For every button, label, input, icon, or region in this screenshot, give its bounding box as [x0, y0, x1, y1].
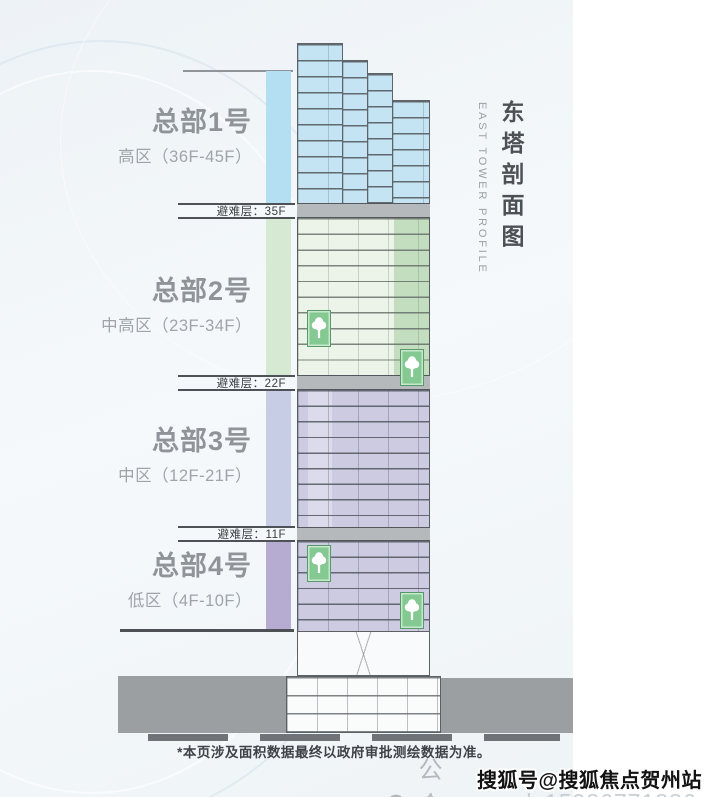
zone-strip-2 — [266, 219, 291, 376]
tree-icon — [404, 598, 420, 623]
basement-levels — [286, 676, 441, 733]
sky-garden-marker — [400, 349, 424, 386]
wechat-label: 公众号 — [418, 750, 467, 797]
tower-profile-page: 避难层：35F 避难层：22F 避难层：11F 总部1号 高区（36F-45F）… — [0, 0, 704, 797]
sohu-watermark: 搜狐号@搜狐焦点贺州站 — [477, 764, 702, 793]
zone-bottom-rule — [120, 629, 294, 632]
page-title: 东塔剖面图 — [494, 100, 528, 255]
tree-icon — [311, 551, 327, 576]
wechat-icon — [388, 789, 409, 797]
refuge-floor-label: 避难层：35F — [217, 203, 286, 219]
tower-highzone-step — [297, 43, 343, 204]
refuge-floor-band-11f — [297, 527, 430, 541]
foundation-piles — [148, 734, 560, 741]
refuge-floor-marker-35f: 避难层：35F — [178, 203, 295, 219]
refuge-floor-marker-22f: 避难层：22F — [178, 375, 295, 391]
refuge-floor-band-35f — [297, 203, 430, 218]
zone-floor-range: 高区（36F-45F） — [56, 143, 252, 167]
zone-title: 总部3号 — [56, 426, 252, 457]
zone-title: 总部2号 — [56, 276, 252, 307]
zone-strip-3 — [266, 391, 291, 527]
zone-floor-range: 中高区（23F-34F） — [56, 312, 252, 336]
tower-highzone-step — [342, 60, 368, 204]
page-title-en: EAST TOWER PROFILE — [476, 102, 488, 275]
sky-garden-marker — [307, 545, 331, 582]
tower-lobby — [297, 631, 430, 676]
tree-icon — [311, 316, 327, 341]
zone-label-4: 总部4号 低区（4F-10F） — [56, 551, 252, 611]
zone-floor-range: 低区（4F-10F） — [56, 587, 252, 611]
refuge-floor-label: 避难层：22F — [217, 375, 286, 391]
zone-label-2: 总部2号 中高区（23F-34F） — [56, 276, 252, 336]
zone-label-1: 总部1号 高区（36F-45F） — [56, 107, 252, 167]
sky-garden-marker — [307, 310, 331, 347]
sky-garden-marker — [400, 592, 424, 629]
zone-strip-4 — [266, 542, 291, 629]
zone-strip-1 — [266, 71, 291, 204]
tower-highzone-step — [392, 100, 430, 204]
tower-mid-zone — [297, 390, 430, 527]
zone-title: 总部1号 — [56, 107, 252, 138]
tree-icon — [404, 355, 420, 380]
zone-floor-range: 中区（12F-21F） — [56, 462, 252, 486]
zone-title: 总部4号 — [56, 551, 252, 582]
refuge-floor-marker-11f: 避难层：11F — [178, 526, 295, 542]
right-white-margin — [573, 0, 704, 797]
ground-band-right — [441, 678, 573, 733]
zone-label-3: 总部3号 中区（12F-21F） — [56, 426, 252, 486]
refuge-floor-label: 避难层：11F — [218, 526, 286, 542]
ground-band-left — [118, 676, 286, 733]
tower-highzone-step — [367, 73, 393, 204]
